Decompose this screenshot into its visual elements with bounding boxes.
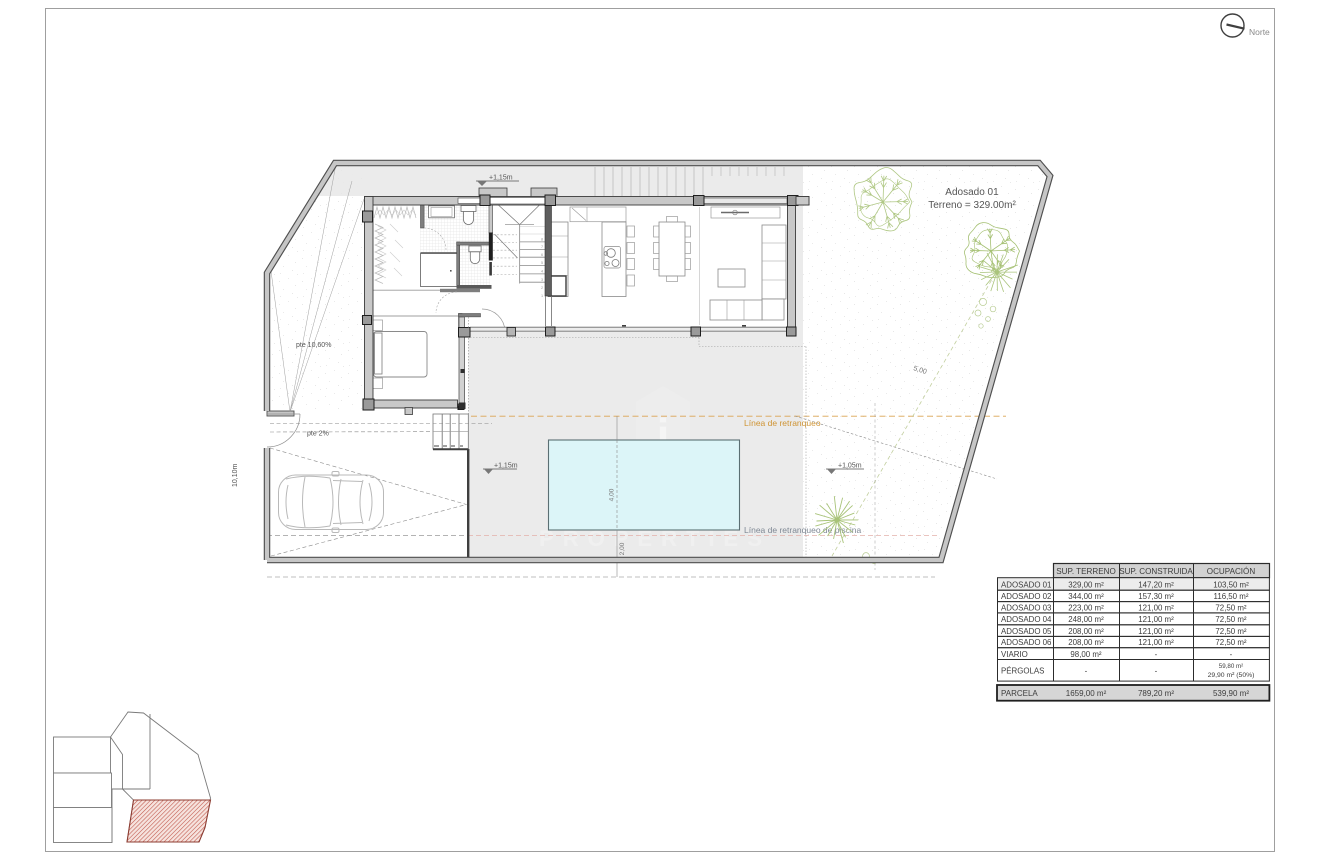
svg-text:344,00 m²: 344,00 m²	[1068, 592, 1104, 601]
svg-text:147,20 m²: 147,20 m²	[1138, 581, 1174, 590]
svg-text:208,00 m²: 208,00 m²	[1068, 627, 1104, 636]
svg-text:329,00 m²: 329,00 m²	[1068, 581, 1104, 590]
svg-text:-: -	[1230, 650, 1233, 659]
svg-text:6: 6	[541, 253, 543, 257]
svg-text:ADOSADO 03: ADOSADO 03	[1001, 604, 1052, 613]
svg-text:OCUPACIÓN: OCUPACIÓN	[1207, 567, 1256, 576]
svg-text:1659,00 m²: 1659,00 m²	[1066, 689, 1107, 698]
svg-text:VIARIO: VIARIO	[1001, 650, 1028, 659]
svg-text:ADOSADO 06: ADOSADO 06	[1001, 638, 1052, 647]
svg-text:ADOSADO 01: ADOSADO 01	[1001, 581, 1051, 590]
svg-text:SUP. TERRENO: SUP. TERRENO	[1056, 567, 1116, 576]
svg-text:116,50 m²: 116,50 m²	[1214, 592, 1249, 601]
svg-text:SUP. CONSTRUIDA: SUP. CONSTRUIDA	[1119, 567, 1193, 576]
svg-text:789,20 m²: 789,20 m²	[1138, 689, 1174, 698]
svg-text:+1,15m: +1,15m	[494, 463, 518, 470]
svg-text:72,50 m²: 72,50 m²	[1215, 615, 1247, 624]
svg-text:pte 2%: pte 2%	[307, 431, 329, 438]
svg-text:PÉRGOLAS: PÉRGOLAS	[1001, 667, 1044, 676]
svg-text:Norte: Norte	[1249, 27, 1270, 37]
svg-text:-: -	[1155, 650, 1158, 659]
svg-text:7: 7	[541, 245, 543, 249]
svg-text:121,00 m²: 121,00 m²	[1138, 627, 1174, 636]
svg-text:29,90 m² (50%): 29,90 m² (50%)	[1208, 672, 1255, 679]
svg-text:+1,05m: +1,05m	[838, 463, 862, 470]
svg-text:2,00: 2,00	[619, 542, 626, 555]
svg-text:PARCELA: PARCELA	[1001, 689, 1038, 698]
svg-text:248,00 m²: 248,00 m²	[1068, 615, 1104, 624]
svg-text:72,50 m²: 72,50 m²	[1215, 638, 1247, 647]
svg-text:98,00 m²: 98,00 m²	[1070, 650, 1102, 659]
svg-text:72,50 m²: 72,50 m²	[1215, 627, 1247, 636]
svg-text:223,00 m²: 223,00 m²	[1068, 604, 1104, 613]
svg-text:59,80 m²: 59,80 m²	[1219, 663, 1243, 670]
svg-text:Adosado 01: Adosado 01	[945, 187, 999, 198]
svg-text:121,00 m²: 121,00 m²	[1138, 604, 1174, 613]
svg-text:157,30 m²: 157,30 m²	[1138, 592, 1174, 601]
svg-text:Línea de retranqueo: Línea de retranqueo	[744, 418, 821, 428]
svg-text:-: -	[1085, 667, 1088, 676]
svg-text:ADOSADO 04: ADOSADO 04	[1001, 615, 1052, 624]
svg-text:103,50 m²: 103,50 m²	[1213, 581, 1249, 590]
svg-text:8: 8	[541, 238, 543, 242]
svg-text:1: 1	[541, 294, 543, 298]
svg-text:10,10m: 10,10m	[232, 463, 239, 487]
svg-text:4: 4	[541, 270, 543, 274]
svg-text:4,00: 4,00	[609, 488, 616, 501]
svg-text:+1,15m: +1,15m	[489, 175, 513, 182]
svg-text:539,90 m²: 539,90 m²	[1213, 689, 1249, 698]
svg-text:3: 3	[541, 278, 543, 282]
svg-text:5: 5	[541, 261, 543, 265]
svg-text:ADOSADO 02: ADOSADO 02	[1001, 592, 1051, 601]
svg-text:2: 2	[541, 286, 543, 290]
svg-text:-: -	[1155, 667, 1158, 676]
svg-text:ADOSADO 05: ADOSADO 05	[1001, 627, 1052, 636]
svg-text:Terreno = 329.00m²: Terreno = 329.00m²	[928, 200, 1016, 211]
svg-text:pte 10,60%: pte 10,60%	[296, 342, 331, 349]
svg-text:208,00 m²: 208,00 m²	[1068, 638, 1104, 647]
svg-text:121,00 m²: 121,00 m²	[1138, 638, 1174, 647]
svg-text:72,50 m²: 72,50 m²	[1215, 604, 1247, 613]
svg-text:121,00 m²: 121,00 m²	[1138, 615, 1174, 624]
